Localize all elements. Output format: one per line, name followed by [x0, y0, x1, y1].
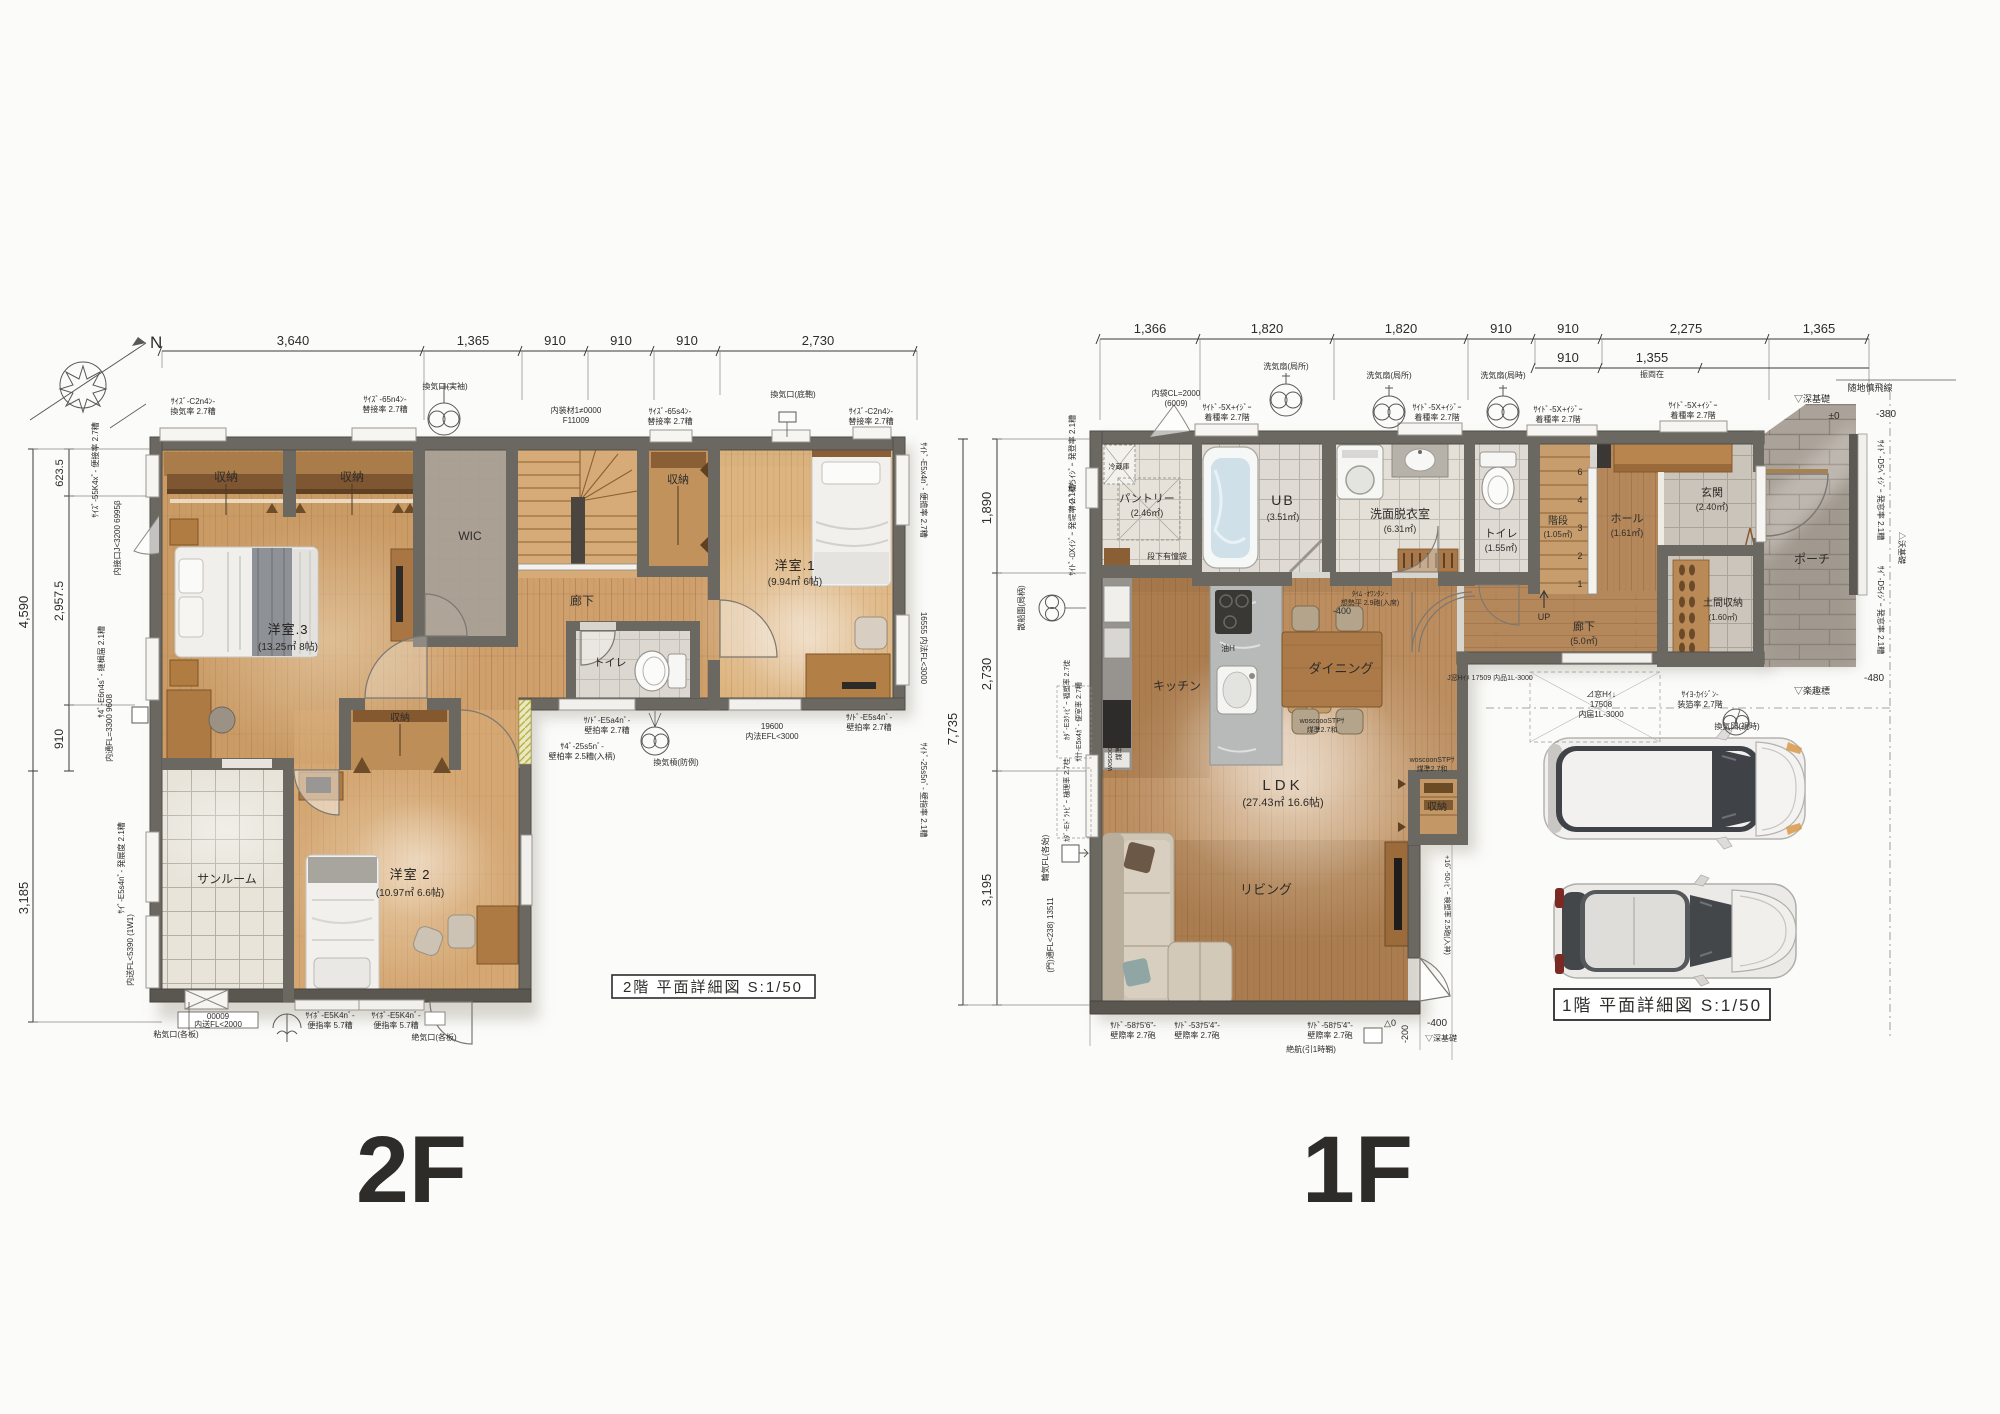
svg-text:6: 6 [1577, 467, 1582, 477]
svg-text:ｻｲｽﾞ-55K4xﾞ- 便接率 2.7糟: ｻｲｽﾞ-55K4xﾞ- 便接率 2.7糟 [90, 422, 100, 518]
svg-text:収納: 収納 [214, 470, 238, 484]
svg-text:洗面脱衣室: 洗面脱衣室 [1370, 506, 1430, 521]
svg-text:内送FL<2000: 内送FL<2000 [194, 1019, 242, 1029]
svg-text:(1.55㎡): (1.55㎡) [1485, 543, 1518, 553]
svg-text:(6.31㎡): (6.31㎡) [1384, 524, 1417, 534]
svg-text:(2.40㎡): (2.40㎡) [1696, 502, 1729, 512]
svg-text:ポーチ: ポーチ [1794, 552, 1830, 566]
svg-text:1,820: 1,820 [1385, 321, 1418, 336]
svg-text:ｻｲﾄﾞ-5X+ｲｼﾞｰ: ｻｲﾄﾞ-5X+ｲｼﾞｰ [1202, 403, 1251, 412]
svg-text:19600: 19600 [761, 722, 784, 731]
svg-text:910: 910 [610, 333, 632, 348]
svg-text:収納: 収納 [390, 711, 410, 724]
svg-text:煤準2.7和: 煤準2.7和 [1307, 725, 1338, 734]
svg-text:woscoooSTPｻ: woscoooSTPｻ [1299, 717, 1345, 725]
svg-text:ｻｲｽﾞ-C2n4ﾝ-: ｻｲｽﾞ-C2n4ﾝ- [171, 397, 216, 406]
svg-text:着種率 2.7階: 着種率 2.7階 [1414, 412, 1459, 422]
svg-text:UP: UP [1538, 612, 1551, 622]
svg-text:内接口J<3200 6995β: 内接口J<3200 6995β [112, 500, 122, 575]
svg-text:ｻｲｽﾞ-C2n4ﾝ-: ｻｲｽﾞ-C2n4ﾝ- [849, 407, 894, 416]
svg-text:(10.97㎡ 6.6帖): (10.97㎡ 6.6帖) [376, 886, 444, 899]
svg-text:着種率 2.7階: 着種率 2.7階 [1670, 410, 1715, 420]
svg-text:1,365: 1,365 [1803, 321, 1836, 336]
svg-text:2: 2 [1577, 551, 1582, 561]
svg-text:WIC: WIC [458, 529, 482, 543]
svg-text:1,820: 1,820 [1251, 321, 1284, 336]
svg-text:便指率 5.7糟: 便指率 5.7糟 [373, 1020, 418, 1030]
svg-text:4: 4 [1577, 495, 1582, 505]
svg-text:(5.0㎡): (5.0㎡) [1570, 636, 1598, 646]
svg-text:収納: 収納 [667, 473, 689, 486]
svg-text:910: 910 [1490, 321, 1512, 336]
svg-text:煤準2.7砲: 煤準2.7砲 [1114, 730, 1123, 761]
svg-text:ｻｲﾄﾞ-D5ﾍﾞｲｼﾞｰ 発窓率 2.1糟: ｻｲﾄﾞ-D5ﾍﾞｲｼﾞｰ 発窓率 2.1糟 [1876, 440, 1886, 540]
svg-text:洋室.1: 洋室.1 [775, 558, 816, 573]
svg-text:-380: -380 [1876, 409, 1896, 420]
svg-text:ｻｲﾎﾞ-E5K4nﾞ-: ｻｲﾎﾞ-E5K4nﾞ- [305, 1011, 355, 1020]
svg-text:(2.46㎡): (2.46㎡) [1131, 508, 1164, 518]
svg-text:壁際率 2.7砲: 壁際率 2.7砲 [1174, 1030, 1219, 1040]
svg-text:910: 910 [1557, 321, 1579, 336]
svg-text:2,730: 2,730 [979, 658, 994, 691]
svg-text:2,957.5: 2,957.5 [52, 581, 66, 621]
svg-text:便指率 5.7糟: 便指率 5.7糟 [307, 1020, 352, 1030]
svg-text:-400: -400 [1427, 1018, 1447, 1029]
svg-text:輪気FL(各始): 輪気FL(各始) [1040, 834, 1050, 881]
svg-text:(13.25㎡ 8帖): (13.25㎡ 8帖) [258, 640, 318, 653]
svg-text:-400: -400 [1333, 606, 1351, 616]
svg-text:UB: UB [1271, 492, 1294, 508]
svg-text:1: 1 [1577, 579, 1582, 589]
svg-text:収納: 収納 [340, 470, 364, 484]
svg-text:ﾀｲﾑ -ｵﾜﾝﾀﾝ -: ﾀｲﾑ -ｵﾜﾝﾀﾝ - [1352, 590, 1389, 598]
svg-text:サンルーム: サンルーム [197, 872, 257, 886]
svg-text:(3.51㎡): (3.51㎡) [1267, 512, 1300, 522]
svg-text:着種率 2.7階: 着種率 2.7階 [1535, 414, 1580, 424]
svg-text:内装材1≠0000: 内装材1≠0000 [551, 405, 602, 415]
svg-text:換気口(実袖): 換気口(実袖) [422, 381, 468, 391]
svg-text:洋室 2: 洋室 2 [390, 867, 431, 882]
svg-text:1,366: 1,366 [1134, 321, 1167, 336]
svg-text:ｻｲｽﾞ-65n4ﾝ-: ｻｲｽﾞ-65n4ﾝ- [363, 395, 406, 404]
svg-text:内届1L-3000: 内届1L-3000 [1578, 709, 1624, 719]
svg-text:ｻｲﾎﾞ-E5K4nﾞ-: ｻｲﾎﾞ-E5K4nﾞ- [371, 1011, 421, 1020]
svg-text:換気槓(防例): 換気槓(防例) [653, 757, 699, 767]
svg-text:絶航(引1時鞘): 絶航(引1時鞘) [1286, 1044, 1336, 1054]
svg-text:振両在: 振両在 [1640, 369, 1664, 379]
svg-text:woscooo STP ち: woscooo STP ち [1106, 719, 1114, 772]
svg-text:装箔率 2.7階: 装箔率 2.7階 [1677, 699, 1722, 709]
svg-text:ｻｲﾄﾞ-25s5nﾞ- 壁指率 2.1糟: ｻｲﾄﾞ-25s5nﾞ- 壁指率 2.1糟 [919, 743, 929, 838]
svg-text:廊下: 廊下 [570, 593, 594, 608]
svg-text:廊下: 廊下 [1573, 619, 1595, 633]
svg-text:キッチン: キッチン [1153, 679, 1201, 693]
svg-text:+16ﾞ-50ｨﾋﾞｰ 検塑率 2.5砲(入神): +16ﾞ-50ｨﾋﾞｰ 検塑率 2.5砲(入神) [1443, 855, 1452, 955]
svg-text:ｻ什-E5x4ｶﾞ- 便室率 2.7糟: ｻ什-E5x4ｶﾞ- 便室率 2.7糟 [1074, 682, 1083, 762]
svg-text:壁拍率 2.7糟: 壁拍率 2.7糟 [846, 722, 891, 732]
svg-text:収納: 収納 [1427, 800, 1447, 813]
svg-text:壁際率 2.7砲: 壁際率 2.7砲 [1110, 1030, 1155, 1040]
svg-text:着種率 2.7階: 着種率 2.7階 [1204, 412, 1249, 422]
svg-text:替接率 2.7糟: 替接率 2.7糟 [362, 404, 407, 414]
svg-text:⊿窓Hｲ↓: ⊿窓Hｲ↓ [1586, 689, 1616, 699]
svg-text:油H: 油H [1221, 643, 1235, 653]
svg-text:910: 910 [676, 333, 698, 348]
svg-text:910: 910 [544, 333, 566, 348]
svg-text:△0: △0 [1384, 1018, 1396, 1028]
svg-text:ｻｲﾄﾞ-5X+ｲｼﾞｰ: ｻｲﾄﾞ-5X+ｲｼﾞｰ [1533, 405, 1582, 414]
svg-text:段下有憧袋: 段下有憧袋 [1147, 551, 1187, 561]
svg-text:ｻｲﾄﾞ-E5x4nﾞ- 便擔率 2.7糟: ｻｲﾄﾞ-E5x4nﾞ- 便擔率 2.7糟 [919, 442, 929, 538]
svg-text:(1.60㎡): (1.60㎡) [1709, 613, 1738, 622]
svg-text:替接率 2.7糟: 替接率 2.7糟 [848, 416, 893, 426]
svg-text:1階 平面詳細図 S:1/50: 1階 平面詳細図 S:1/50 [1562, 996, 1762, 1015]
svg-text:換気率 2.7糟: 換気率 2.7糟 [170, 406, 215, 416]
svg-text:ｶﾀﾞ-E3ｸｨﾋﾟｰ 福塑率 2.7徒: ｶﾀﾞ-E3ｸｨﾋﾟｰ 福塑率 2.7徒 [1062, 660, 1071, 741]
svg-text:絶気口(各板): 絶気口(各板) [411, 1032, 457, 1042]
svg-text:910: 910 [1557, 350, 1579, 365]
svg-text:J窓Hｲﾒ 17509 内品1L-3000: J窓Hｲﾒ 17509 内品1L-3000 [1447, 673, 1533, 682]
svg-text:トイレ: トイレ [594, 657, 627, 669]
svg-text:内送FL<5390 (1W1): 内送FL<5390 (1W1) [125, 914, 135, 986]
svg-text:F11009: F11009 [563, 416, 590, 425]
svg-text:ｶﾀﾞ-Eﾄﾞﾗﾄﾋﾟｰ 樋理率 2.7桂: ｶﾀﾞ-Eﾄﾞﾗﾄﾋﾟｰ 樋理率 2.7桂 [1062, 758, 1071, 842]
svg-text:3,185: 3,185 [16, 882, 31, 915]
svg-text:ｻ/ﾄﾞ-58ﾅ5'6"-: ｻ/ﾄﾞ-58ﾅ5'6"- [1110, 1021, 1156, 1030]
svg-text:煤準2.7和: 煤準2.7和 [1417, 764, 1448, 773]
svg-text:16555 内法FL<3000: 16555 内法FL<3000 [919, 612, 929, 685]
svg-text:623.5: 623.5 [54, 459, 66, 487]
svg-text:△沃基礎: △沃基礎 [1897, 532, 1907, 564]
svg-text:1,890: 1,890 [979, 492, 994, 525]
svg-text:2階 平面詳細図 S:1/50: 2階 平面詳細図 S:1/50 [623, 979, 803, 996]
svg-text:トイレ: トイレ [1485, 528, 1518, 540]
svg-text:ホール: ホール [1611, 512, 1644, 525]
svg-text:ダイニング: ダイニング [1308, 661, 1373, 676]
svg-text:替接率 2.7糟: 替接率 2.7糟 [647, 416, 692, 426]
svg-text:1,365: 1,365 [457, 333, 490, 348]
svg-text:ｻｲﾄﾞ-5X+ｲｼﾞｰ: ｻｲﾄﾞ-5X+ｲｼﾞｰ [1412, 403, 1461, 412]
svg-text:-480: -480 [1864, 673, 1884, 684]
svg-text:(27.43㎡ 16.6帖): (27.43㎡ 16.6帖) [1242, 796, 1323, 809]
svg-text:土間収納: 土間収納 [1703, 596, 1743, 609]
svg-text:階段: 階段 [1548, 514, 1568, 527]
svg-text:3,195: 3,195 [979, 874, 994, 907]
svg-text:洗気扇(局時): 洗気扇(局時) [1480, 370, 1526, 380]
svg-text:ｻｲﾄﾞ-5X+ｲｼﾞｰ: ｻｲﾄﾞ-5X+ｲｼﾞｰ [1668, 401, 1717, 410]
svg-text:1,355: 1,355 [1636, 350, 1669, 365]
svg-text:リビング: リビング [1240, 882, 1292, 897]
svg-text:17508: 17508 [1590, 700, 1613, 709]
svg-text:▽楽趣標: ▽楽趣標 [1794, 685, 1830, 696]
svg-text:ｻ/ﾄﾞ-E5s4nﾞ-: ｻ/ﾄﾞ-E5s4nﾞ- [846, 713, 893, 722]
svg-text:ｻｲﾖ-ｶｲｼﾞﾝ-: ｻｲﾖ-ｶｲｼﾞﾝ- [1681, 690, 1719, 699]
svg-text:ｻｲﾞ-E5s4nﾞ- 発展度 2.1糟: ｻｲﾞ-E5s4nﾞ- 発展度 2.1糟 [116, 822, 126, 914]
svg-text:2F: 2F [356, 1117, 467, 1223]
svg-text:▽深基礎: ▽深基礎 [1794, 393, 1830, 404]
svg-text:1F: 1F [1302, 1117, 1413, 1223]
svg-text:壁際率 2.7砲: 壁際率 2.7砲 [1307, 1030, 1352, 1040]
svg-text:3,640: 3,640 [277, 333, 310, 348]
svg-text:2,730: 2,730 [802, 333, 835, 348]
svg-text:玄関: 玄関 [1701, 485, 1723, 499]
svg-text:ｻｲﾄﾞ-ﾛXｲｼﾞｰ 発堤率 2.1糟: ｻｲﾄﾞ-ﾛXｲｼﾞｰ 発堤率 2.1糟 [1067, 484, 1077, 576]
svg-text:(1.05㎡): (1.05㎡) [1544, 530, 1573, 539]
svg-text:換気口(底鞄): 換気口(底鞄) [770, 389, 816, 399]
svg-text:壁拍率 2.7糟: 壁拍率 2.7糟 [584, 725, 629, 735]
svg-text:910: 910 [52, 729, 66, 749]
svg-text:洗気扇(局所): 洗気扇(局所) [1263, 361, 1309, 371]
svg-text:ｻ/ﾄﾞ-53ﾅ5'4"-: ｻ/ﾄﾞ-53ﾅ5'4"- [1174, 1021, 1220, 1030]
svg-text:洗気扇(局所): 洗気扇(局所) [1366, 370, 1412, 380]
svg-text:随地慎飛線: 随地慎飛線 [1847, 382, 1892, 393]
svg-text:内通FL=3300 9608: 内通FL=3300 9608 [104, 694, 114, 762]
svg-text:N: N [150, 333, 162, 352]
svg-text:(6009): (6009) [1164, 399, 1187, 408]
svg-text:ｻ4ﾞ-25s5nﾞ-: ｻ4ﾞ-25s5nﾞ- [560, 742, 604, 751]
svg-text:LDK: LDK [1262, 777, 1303, 794]
svg-text:冷蔵庫: 冷蔵庫 [1109, 462, 1130, 471]
svg-text:散船園(局柄): 散船園(局柄) [1016, 585, 1026, 631]
svg-text:woscoonSTPｻ: woscoonSTPｻ [1409, 756, 1455, 764]
svg-text:7,735: 7,735 [945, 713, 960, 746]
svg-text:(門)通FL<238) 13511: (門)通FL<238) 13511 [1045, 897, 1055, 973]
svg-text:(9.94㎡ 6帖): (9.94㎡ 6帖) [768, 575, 822, 588]
svg-text:壁柏率 2.5糟(入柄): 壁柏率 2.5糟(入柄) [549, 751, 616, 761]
svg-text:内袋CL=2000: 内袋CL=2000 [1152, 388, 1201, 398]
svg-text:粘気口(各板): 粘気口(各板) [153, 1029, 199, 1039]
svg-text:ｻｲﾞ-D5ｲｼﾞｰ 発窓率 2.1糟: ｻｲﾞ-D5ｲｼﾞｰ 発窓率 2.1糟 [1876, 566, 1886, 654]
svg-text:内法EFL<3000: 内法EFL<3000 [745, 731, 799, 741]
svg-text:±0: ±0 [1828, 411, 1839, 422]
svg-text:ｻ/ﾄﾞ-E5a4nﾞ-: ｻ/ﾄﾞ-E5a4nﾞ- [584, 716, 631, 725]
svg-text:パントリー: パントリー [1119, 492, 1175, 505]
svg-text:-200: -200 [1400, 1025, 1410, 1043]
svg-text:洋室.3: 洋室.3 [268, 622, 309, 637]
svg-text:ｻｲｽﾞ-65s4ﾝ-: ｻｲｽﾞ-65s4ﾝ- [649, 407, 692, 416]
svg-text:(1.61㎡): (1.61㎡) [1611, 528, 1644, 538]
svg-text:4,590: 4,590 [16, 596, 31, 629]
svg-text:3: 3 [1577, 523, 1582, 533]
svg-text:ｻ/ﾄﾞ-58ﾅ5'4"-: ｻ/ﾄﾞ-58ﾅ5'4"- [1307, 1021, 1353, 1030]
svg-text:2,275: 2,275 [1670, 321, 1703, 336]
